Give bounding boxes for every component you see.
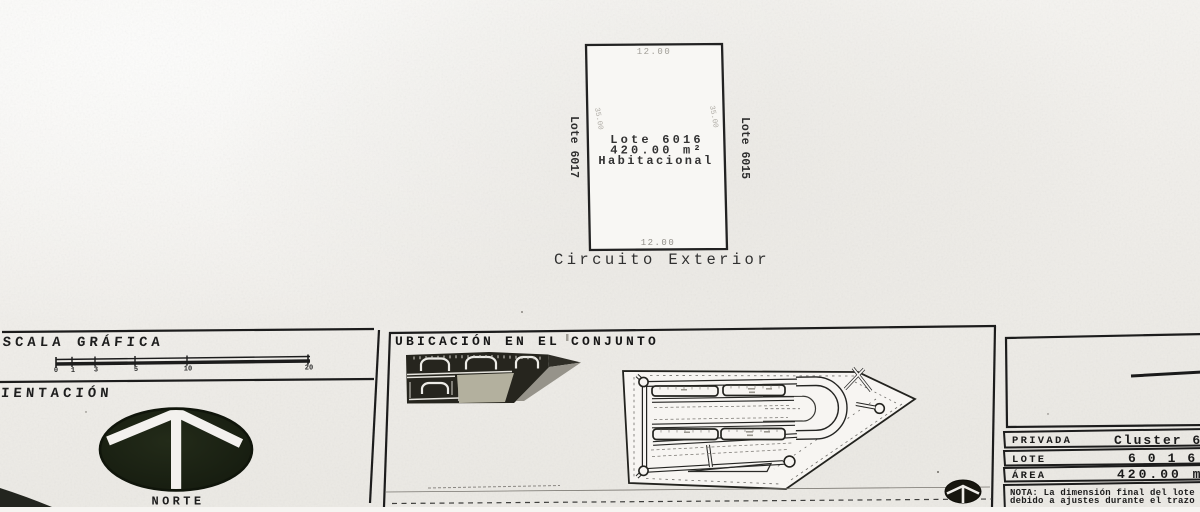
svg-text:0: 0 (54, 367, 58, 375)
svg-text:1: 1 (71, 367, 75, 375)
svg-text:5: 5 (134, 366, 138, 374)
svg-text:ORIENTACIÓN: ORIENTACIÓN (0, 384, 113, 402)
svg-text:10: 10 (184, 366, 192, 374)
svg-text:20: 20 (305, 365, 313, 373)
svg-text:6016: 6016 (1128, 451, 1200, 466)
svg-text:420.00 m²: 420.00 m² (1117, 467, 1200, 482)
svg-text:Habitacional: Habitacional (598, 154, 713, 168)
svg-text:UBICACIÓN EN EL CONJUNTO: UBICACIÓN EN EL CONJUNTO (395, 334, 659, 349)
svg-text:debido a ajustes durante el tr: debido a ajustes durante el trazo (1010, 496, 1195, 506)
svg-text:12.00: 12.00 (641, 238, 676, 248)
svg-text:Lote 6015: Lote 6015 (738, 117, 751, 179)
svg-text:ÁREA: ÁREA (1012, 468, 1046, 482)
svg-text:Circuito Exterior: Circuito Exterior (554, 251, 770, 269)
svg-text:NORTE: NORTE (151, 495, 204, 508)
svg-text:Cluster 6: Cluster 6 (1114, 433, 1200, 448)
svg-text:LOTE: LOTE (1012, 454, 1046, 466)
svg-text:12.00: 12.00 (637, 47, 672, 57)
svg-text:Lote 6017: Lote 6017 (567, 116, 580, 178)
svg-text:PRIVADA: PRIVADA (1012, 435, 1072, 447)
svg-text:3: 3 (94, 367, 98, 375)
svg-text:ESCALA GRÁFICA: ESCALA GRÁFICA (0, 333, 164, 351)
